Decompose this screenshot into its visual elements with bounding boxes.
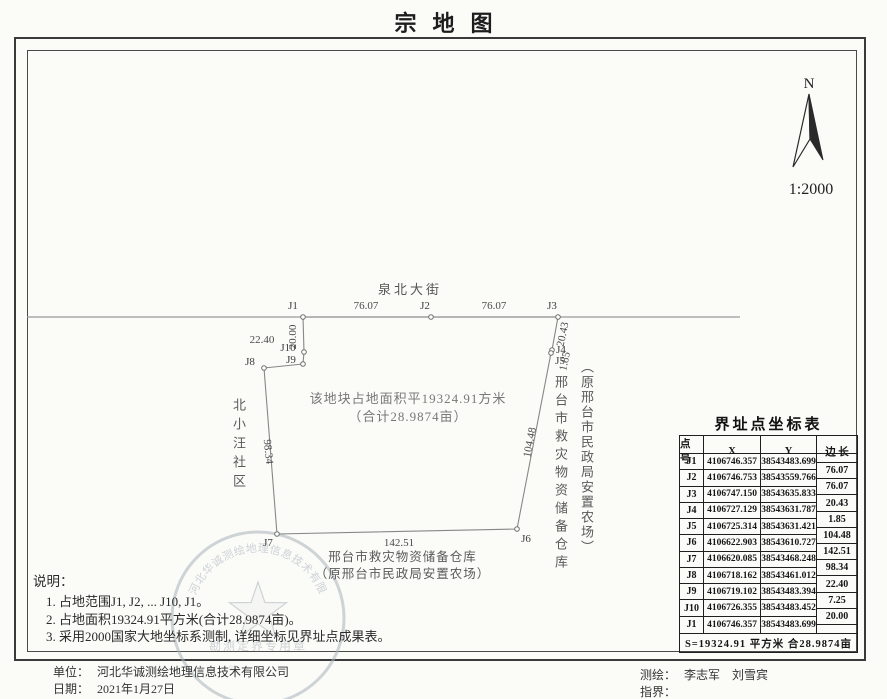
edge-length-cell: 20.00	[817, 608, 857, 624]
edge-length-cell: 1.85	[817, 511, 857, 527]
coord-cell: J4	[680, 503, 704, 519]
page-title: 宗地图	[0, 6, 887, 38]
coord-cell: 38543635.833	[761, 487, 817, 503]
surveyor-value: 李志军 刘雪宾	[684, 668, 768, 682]
boundary-row: 指界：	[640, 684, 768, 699]
note-item-2: 2. 占地面积19324.91平方米(合计28.9874亩)。	[46, 611, 391, 629]
edge-length-spacer	[817, 624, 857, 633]
date-value: 2021年1月27日	[97, 682, 175, 696]
coord-cell: J9	[680, 584, 704, 600]
coord-cell: J2	[680, 470, 704, 486]
date-label: 日期：	[53, 682, 89, 696]
edge-length-cell: 98.34	[817, 559, 857, 575]
coord-table-body: J14106746.35738543483.699J24106746.75338…	[680, 454, 857, 633]
west-neighbor-label: 北小汪社区	[229, 398, 248, 493]
edge-length-cell: 76.07	[817, 462, 857, 478]
edge-length-cell: 104.48	[817, 527, 857, 543]
surveyor-label: 测绘：	[640, 668, 676, 682]
coord-cell: 4106620.085	[704, 552, 761, 568]
coord-cell: 4106622.903	[704, 535, 761, 551]
coord-cell: J10	[680, 600, 704, 616]
north-arrow-right-blade	[809, 94, 823, 160]
south-neighbor-line1: 邢台市救灾物资储备仓库	[295, 549, 510, 566]
parcel-map-page: 宗地图 河北华诚测绘地理信息技术有限公司 勘测定界专用章 032 J1J2J3J…	[0, 0, 887, 699]
edge-length-cell: 142.51	[817, 543, 857, 559]
coord-cell: J1	[680, 454, 704, 470]
coord-cell: 4106746.753	[704, 470, 761, 486]
unit-label: 单位：	[53, 665, 89, 679]
coord-table-grid: J14106746.35738543483.699J24106746.75338…	[680, 454, 817, 633]
parcel-area-line1: 该地块占地面积平19324.91方米	[298, 390, 518, 408]
street-name-label: 泉北大街	[360, 279, 460, 298]
coord-cell: 38543631.787	[761, 503, 817, 519]
coord-cell: 4106727.129	[704, 503, 761, 519]
notes-title: 说明：	[33, 570, 391, 590]
parcel-area-line2: （合计28.9874亩）	[298, 408, 518, 426]
credit-left-block: 单位：河北华诚测绘地理信息技术有限公司 日期：2021年1月27日	[53, 664, 289, 698]
coord-cell: 38543483.699	[761, 454, 817, 470]
coord-cell: J1	[680, 617, 704, 633]
unit-row: 单位：河北华诚测绘地理信息技术有限公司	[53, 664, 289, 681]
credit-right-block: 测绘：李志军 刘雪宾 指界：	[640, 667, 768, 699]
coord-cell: 38543461.012	[761, 568, 817, 584]
north-arrow-left-blade	[793, 94, 810, 167]
note-item-1: 1. 占地范围J1, J2, ... J10, J1。	[46, 593, 391, 611]
coord-cell: 4106718.162	[704, 568, 761, 584]
notes-block: 说明： 1. 占地范围J1, J2, ... J10, J1。 2. 占地面积1…	[33, 570, 391, 646]
coord-cell: J7	[680, 552, 704, 568]
coord-cell: J6	[680, 535, 704, 551]
edge-length-cell: 22.40	[817, 575, 857, 591]
coord-cell: 4106726.355	[704, 600, 761, 616]
coord-cell: 38543468.248	[761, 552, 817, 568]
coord-table-title: 界址点坐标表	[679, 413, 858, 434]
coord-table-footer: S=19324.91 平方米 合28.9874亩	[680, 633, 857, 653]
coord-cell: 38543559.766	[761, 470, 817, 486]
coord-cell: 38543631.421	[761, 519, 817, 535]
date-row: 日期：2021年1月27日	[53, 681, 289, 698]
parcel-area-label: 该地块占地面积平19324.91方米 （合计28.9874亩）	[298, 390, 518, 426]
coord-table: 点 号 X Y 边 长 J14106746.35738543483.699J24…	[679, 435, 858, 653]
coord-cell: 4106746.357	[704, 617, 761, 633]
coord-cell: 4106746.357	[704, 454, 761, 470]
north-n-label: N	[804, 76, 815, 92]
coord-cell: 4106725.314	[704, 519, 761, 535]
coord-cell: 4106719.102	[704, 584, 761, 600]
unit-value: 河北华诚测绘地理信息技术有限公司	[97, 665, 289, 679]
edge-length-cell: 76.07	[817, 478, 857, 494]
edge-length-spacer	[817, 454, 857, 462]
coord-cell: 38543483.394	[761, 584, 817, 600]
east-neighbor-label-1: 邢台市救灾物资储备仓库	[551, 375, 570, 573]
coord-cell: 38543483.699	[761, 617, 817, 633]
coord-cell: J8	[680, 568, 704, 584]
coord-cell: 4106747.150	[704, 487, 761, 503]
coord-cell: J3	[680, 487, 704, 503]
coord-cell: 38543610.727	[761, 535, 817, 551]
surveyor-row: 测绘：李志军 刘雪宾	[640, 667, 768, 684]
scale-label: 1:2000	[789, 181, 833, 198]
boundary-label: 指界：	[640, 685, 676, 699]
east-neighbor-label-2: （原邢台市民政局安置农场）	[577, 360, 596, 555]
coord-cell: 38543483.452	[761, 600, 817, 616]
edge-length-column: 76.0776.0720.431.85104.48142.5198.3422.4…	[816, 454, 857, 633]
note-item-3: 3. 采用2000国家大地坐标系测制, 详细坐标见界址点成果表。	[46, 628, 391, 646]
coord-table-header: 点 号 X Y 边 长	[680, 436, 857, 454]
edge-length-cell: 20.43	[817, 494, 857, 510]
north-arrow: N 1:2000	[775, 72, 855, 202]
edge-length-cell: 7.25	[817, 592, 857, 608]
coord-cell: J5	[680, 519, 704, 535]
